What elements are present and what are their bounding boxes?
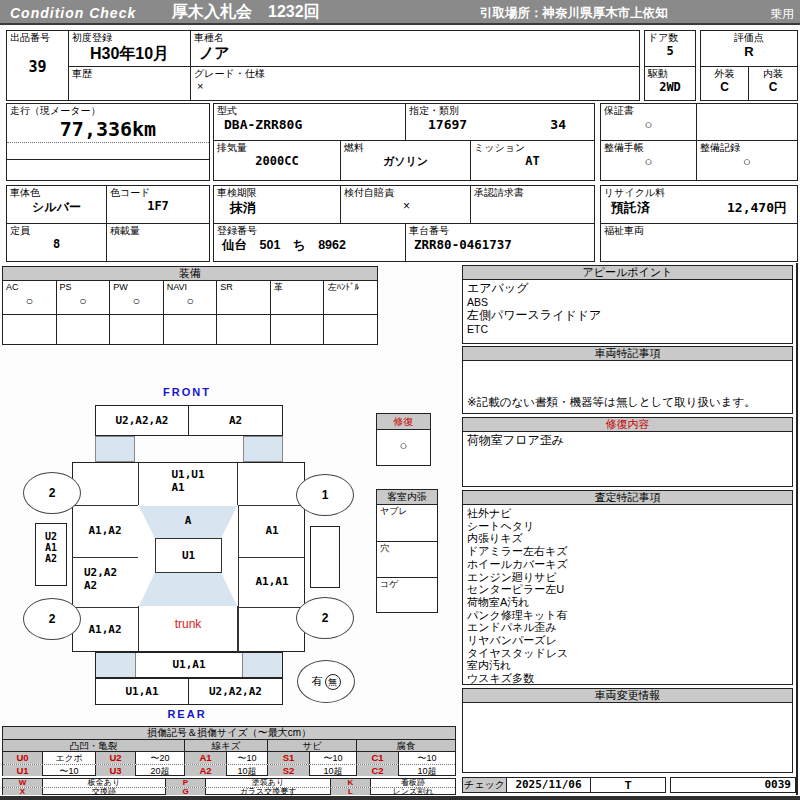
- drive-value: 2WD: [645, 80, 695, 94]
- rear-bumper-right-marks: U2,A2,A2: [189, 679, 282, 704]
- taillight-left: [96, 653, 136, 677]
- legend-mark-code: W: [3, 779, 43, 787]
- cabin-lining-title: 客室内張: [377, 490, 437, 505]
- model-code-label: 型式: [214, 104, 405, 117]
- spare-tire-mark: 有 無: [297, 660, 355, 703]
- score-box: 評価点 R 外装 C 内装 C: [700, 30, 798, 101]
- special-notes-panel: 車両特記事項 ※記載のない書類・機器等は無しとして取り扱います。: [462, 346, 793, 414]
- legend-code: S2: [268, 765, 310, 776]
- roof-mark: U1: [182, 549, 195, 562]
- chassis-number-label: 車台番号: [406, 224, 594, 237]
- legend-code: S1: [268, 752, 310, 764]
- legend-size: 〜20: [136, 752, 185, 764]
- equipment-cell-ac: AC ○: [3, 281, 57, 314]
- sheet-number-box: 0039: [670, 777, 796, 793]
- fuel-value: ガソリン: [341, 154, 470, 169]
- change-info-panel: 車両変更情報: [462, 688, 793, 773]
- check-label-cell: チェック: [463, 778, 507, 792]
- equipment-cell-leather: 革: [271, 281, 325, 314]
- rear-label: REAR: [140, 708, 234, 720]
- legend-mark-label: レンズ割れ: [371, 788, 455, 795]
- maintenance-record-label: 整備記録: [697, 141, 797, 154]
- equipment-cell-pw: PW ○: [110, 281, 164, 314]
- legend-size: 〜10: [227, 752, 268, 764]
- model-code-value: DBA-ZRR80G: [214, 117, 405, 132]
- left-slide-door-marks-line2: A2: [84, 579, 138, 592]
- capacity-label: 定員: [7, 224, 106, 237]
- maintenance-book-label: 整備手帳: [601, 141, 696, 154]
- assessment-line: ドアミラー左右キズ: [467, 545, 788, 558]
- assessment-line: リヤバンパーズレ: [467, 634, 788, 647]
- repair-mark-title: 修復: [377, 414, 430, 430]
- legend-code: A2: [185, 765, 227, 776]
- equipment-label-pw: PW: [110, 281, 163, 294]
- first-registration-value: H30年10月: [69, 44, 190, 65]
- drive-label: 駆動: [645, 67, 695, 80]
- left-mirror-box: U2 A1 A2: [35, 523, 67, 586]
- cabin-row-tear: ヤブレ: [377, 505, 437, 518]
- bottom-bar: [0, 796, 800, 800]
- lot-number-value: 39: [7, 58, 68, 76]
- taillight-right: [242, 653, 282, 677]
- wheel-front-left-tire-count: 2: [49, 486, 56, 500]
- damage-legend-table: 損傷記号＆損傷サイズ（〜最大cm） 凸凹・亀裂 線キズ サビ 腐食 U0 エクボ…: [2, 726, 456, 776]
- chassis-number-value: ZRR80-0461737: [406, 237, 594, 252]
- insurance-label: 検付自賠責: [341, 186, 470, 199]
- brand-logo: Condition Check: [10, 5, 136, 21]
- appeal-line: エアバッグ: [467, 282, 788, 296]
- repair-mark-box: 修復 ○: [376, 413, 431, 466]
- legend-code: U2: [96, 752, 136, 764]
- equipment-mark-ps: ○: [57, 294, 110, 308]
- legend-group-corrosion: 腐食: [357, 740, 455, 751]
- interior-value: C: [749, 80, 797, 94]
- insurance-mark: ×: [341, 199, 470, 213]
- cabin-row-hole: 穴: [377, 542, 437, 555]
- body-color-value: シルバー: [7, 199, 106, 216]
- legend-size: 〜10: [310, 752, 357, 764]
- assessment-line: ウスキズ多数: [467, 672, 788, 685]
- equipment-table: 装備 AC ○ PS ○ PW ○ NAVI ○ SR 革: [2, 266, 378, 345]
- legend-mark-label: ガラス交換要す: [206, 788, 331, 795]
- load-label: 積載量: [107, 224, 209, 237]
- body-color-label: 車体色: [7, 186, 106, 199]
- hood-marks-line2: A1: [119, 481, 237, 494]
- assessment-line: 内張りキズ: [467, 532, 788, 545]
- assessment-line: ホイールカバーキズ: [467, 558, 788, 571]
- wheel-rear-left: 2: [23, 598, 81, 640]
- title-bar: Condition Check 厚木入札会 1232回 引取場所：神奈川県厚木市…: [0, 0, 800, 25]
- legend-size: 〜10: [399, 752, 455, 764]
- vehicle-identity-box: 出品番号 39 初度登録 H30年10月 車歴 車種名 ノア グレード・仕様 ×: [6, 30, 640, 101]
- left-mirror-mark: U2: [36, 531, 66, 542]
- right-edge-line: [796, 263, 798, 795]
- maintenance-record-mark: ○: [697, 154, 797, 169]
- equipment-cell-ps: PS ○: [57, 281, 111, 314]
- history-label: 車歴: [69, 67, 190, 80]
- assessment-line: 室内汚れ: [467, 659, 788, 672]
- hood-marks-line1: U1,U1: [139, 468, 237, 481]
- change-info-title: 車両変更情報: [463, 689, 792, 703]
- pickup-location: 引取場所：神奈川県厚木市上依知: [480, 5, 668, 22]
- equipment-cell-sr: SR: [217, 281, 271, 314]
- doors-value: 5: [645, 44, 695, 58]
- legend-group-rust: サビ: [268, 740, 357, 751]
- left-front-door-panel: A1,A2: [72, 505, 138, 557]
- special-notes-title: 車両特記事項: [463, 347, 792, 361]
- repair-panel: 修復内容 荷物室フロア歪み: [462, 417, 793, 487]
- legend-size: 〜10: [43, 765, 96, 776]
- type-number: 17697: [428, 117, 467, 132]
- rear-bumper-left-marks: U1,A1: [96, 679, 189, 704]
- cabin-lining-box: 客室内張 ヤブレ 穴 コゲ: [376, 489, 438, 613]
- registration-number-label: 登録番号: [214, 224, 405, 237]
- exterior-label: 外装: [701, 67, 748, 80]
- legend-code: A1: [185, 752, 227, 764]
- right-quarter-panel: [238, 607, 305, 652]
- legend-code: U3: [96, 765, 136, 776]
- divider-dotted: [7, 142, 209, 143]
- first-registration-label: 初度登録: [69, 31, 190, 44]
- legend-group-scratch: 線キズ: [185, 740, 268, 751]
- registration-box: 車検期限 抹消 検付自賠責 × 承認請求書 登録番号 仙台 501 ち 8962…: [213, 185, 595, 262]
- maintenance-book-mark: ○: [601, 154, 696, 169]
- left-mirror-mark: A2: [36, 553, 66, 564]
- auction-condition-sheet: Condition Check 厚木入札会 1232回 引取場所：神奈川県厚木市…: [0, 0, 800, 800]
- documents-empty-cell: [697, 104, 797, 140]
- equipment-mark-ac: ○: [3, 294, 56, 308]
- lot-number-cell: 出品番号 39: [7, 31, 69, 100]
- left-slide-door-panel: U2,A2 A2: [72, 557, 138, 607]
- equipment-mark-pw: ○: [110, 294, 163, 308]
- wheel-rear-right-tire-count: 2: [322, 611, 329, 625]
- model-name-value: ノア: [191, 44, 639, 63]
- legend-code: U0: [3, 752, 43, 764]
- warranty-mark: ○: [601, 117, 696, 132]
- special-notes-disclaimer: ※記載のない書類・機器等は無しとして取り扱います。: [467, 395, 756, 410]
- equipment-cell-lhd: 左ﾊﾝﾄﾞﾙ: [324, 281, 377, 314]
- equipment-label-leather: 革: [271, 281, 324, 294]
- legend-mark-code: L: [331, 788, 371, 795]
- damage-legend-title: 損傷記号＆損傷サイズ（〜最大cm）: [3, 727, 455, 740]
- score-value: R: [701, 44, 797, 59]
- displacement-value: 2000CC: [214, 154, 340, 168]
- grade-label: グレード・仕様: [191, 67, 639, 80]
- inspection-value: 抹消: [214, 199, 340, 217]
- wheel-front-right: 1: [296, 474, 354, 516]
- welfare-label: 福祉車両: [601, 224, 797, 237]
- exterior-value: C: [701, 80, 748, 94]
- equipment-label-sr: SR: [217, 281, 270, 294]
- rear-bumper: U1,A1 U2,A2,A2: [95, 678, 283, 705]
- front-bumper-right-marks: A2: [189, 406, 282, 435]
- legend-mark-label: 塗装あり: [206, 779, 331, 787]
- windshield-mark: A: [185, 514, 192, 527]
- legend-size: 10超: [227, 765, 268, 776]
- legend-mark-code: K: [331, 779, 371, 787]
- trunk-area: trunk: [138, 606, 238, 652]
- recycle-fee: 12,470円: [727, 199, 787, 217]
- left-slide-door-marks-line1: U2,A2: [84, 566, 138, 579]
- color-code-label: 色コード: [107, 186, 209, 199]
- capacity-value: 8: [7, 237, 106, 251]
- front-bumper-left-marks: U2,A2,A2: [96, 406, 189, 435]
- assessment-line: 社外ナビ: [467, 507, 788, 520]
- left-quarter-panel: A1,A2: [72, 607, 138, 652]
- check-date: 2025/11/06: [507, 778, 591, 792]
- appeal-panel: アピールポイント エアバッグ ABS 左側パワースライドドア ETC: [462, 265, 793, 344]
- equipment-empty-row: [3, 315, 377, 345]
- spare-yes-label: 有: [312, 674, 323, 689]
- approval-label: 承認請求書: [471, 186, 594, 199]
- warranty-label: 保証書: [601, 104, 696, 117]
- doors-label: ドア数: [645, 31, 695, 44]
- cabin-row-burn: コゲ: [377, 578, 437, 591]
- assessment-line: 荷物室A汚れ: [467, 596, 788, 609]
- right-front-panel: A1: [238, 505, 305, 557]
- grade-value: ×: [191, 80, 639, 92]
- equipment-label-ps: PS: [57, 281, 110, 294]
- doors-drive-box: ドア数 5 駆動 2WD: [644, 30, 696, 101]
- recycle-box: リサイクル料 預託済 12,470円 福祉車両: [600, 185, 798, 262]
- divider-solid: [7, 159, 209, 160]
- vehicle-category: 乗用: [770, 6, 794, 23]
- mission-label: ミッション: [471, 141, 594, 154]
- mission-value: AT: [471, 154, 594, 168]
- legend-mark-label: 看板跡: [371, 779, 455, 787]
- legend-mark-label: 板金あり: [43, 779, 166, 787]
- displacement-label: 排気量: [214, 141, 340, 154]
- auction-title: 厚木入札会 1232回: [172, 2, 320, 23]
- interior-label: 内装: [749, 67, 797, 80]
- repair-mark-value: ○: [377, 430, 430, 462]
- appeal-line: ABS: [467, 296, 788, 310]
- color-code-value: 1F7: [107, 199, 209, 213]
- recycle-status: 預託済: [611, 199, 650, 217]
- mileage-label: 走行（現メーター）: [7, 104, 209, 117]
- mileage-box: 走行（現メーター） 77,336km: [6, 103, 210, 181]
- class-number: 34: [550, 117, 566, 132]
- equipment-mark-navi: ○: [164, 294, 217, 308]
- equipment-label-navi: NAVI: [164, 281, 217, 294]
- assessment-line: エンジン廻りサビ: [467, 571, 788, 584]
- appeal-title: アピールポイント: [463, 266, 792, 280]
- repair-title: 修復内容: [463, 418, 792, 432]
- assessment-line: タイヤスタッドレス: [467, 647, 788, 660]
- appeal-line: ETC: [467, 323, 788, 337]
- score-label: 評価点: [701, 31, 797, 44]
- equipment-title: 装備: [3, 267, 377, 281]
- legend-code: C2: [357, 765, 399, 776]
- legend-mark-code: X: [3, 788, 43, 795]
- model-name-cell: 車種名 ノア グレード・仕様 ×: [191, 31, 639, 100]
- legend-size: 10超: [399, 765, 455, 776]
- legend-mark-code: G: [166, 788, 206, 795]
- spare-no-label-circled: 無: [325, 674, 341, 690]
- legend-code: U1: [3, 765, 43, 776]
- documents-box: 保証書 ○ 整備手帳 ○ 整備記録 ○: [600, 103, 798, 181]
- rear-window: [139, 573, 237, 606]
- equipment-label-ac: AC: [3, 281, 56, 294]
- type-class-label: 指定・類別: [406, 104, 594, 117]
- front-bumper: U2,A2,A2 A2: [95, 405, 283, 436]
- wheel-front-left: 2: [23, 472, 81, 514]
- trunk-label: trunk: [175, 617, 202, 631]
- headlight-left: [95, 436, 135, 462]
- legend-code: C1: [357, 752, 399, 764]
- legend-group-dents: 凸凹・亀裂: [3, 740, 185, 751]
- mileage-value: 77,336km: [7, 117, 209, 141]
- fuel-label: 燃料: [341, 141, 470, 154]
- windshield: A: [139, 506, 237, 538]
- legend-size: 10超: [310, 765, 357, 776]
- hood-panel: U1,U1 A1: [138, 462, 238, 505]
- equipment-label-lhd: 左ﾊﾝﾄﾞﾙ: [324, 281, 377, 294]
- assessment-line: シートヘタリ: [467, 520, 788, 533]
- wheel-rear-right: 2: [296, 597, 354, 639]
- color-capacity-box: 車体色 シルバー 色コード 1F7 定員 8 積載量: [6, 185, 210, 262]
- lot-number-label: 出品番号: [7, 31, 68, 44]
- inspection-label: 車検期限: [214, 186, 340, 199]
- check-inspector: T: [591, 778, 665, 792]
- front-label: FRONT: [140, 386, 234, 398]
- assessment-line: パンク修理キット有: [467, 609, 788, 622]
- legend-size: 20超: [136, 765, 185, 776]
- tailgate-marks: U1,A1: [136, 653, 242, 677]
- first-registration-cell: 初度登録 H30年10月 車歴: [69, 31, 191, 100]
- wheel-front-right-tire-count: 1: [322, 488, 329, 502]
- check-row: チェック 2025/11/06 T: [462, 777, 666, 793]
- assessment-line: センターピラー左U: [467, 583, 788, 596]
- model-name-label: 車種名: [191, 31, 639, 44]
- registration-number-value: 仙台 501 ち 8962: [214, 237, 405, 254]
- recycle-label: リサイクル料: [601, 186, 797, 199]
- headlight-right: [243, 436, 283, 462]
- assessment-panel: 査定特記事項 社外ナビ シートヘタリ 内張りキズ ドアミラー左右キズ ホイールカ…: [462, 490, 793, 685]
- legend-mark-label: 交換跡: [43, 788, 166, 795]
- left-mirror-mark: A1: [36, 542, 66, 553]
- assessment-line: エンドパネル歪み: [467, 621, 788, 634]
- legend-size: エクボ: [43, 752, 96, 764]
- wheel-rear-left-tire-count: 2: [49, 612, 56, 626]
- tailgate-strip: U1,A1: [95, 652, 283, 678]
- equipment-cell-navi: NAVI ○: [164, 281, 218, 314]
- legend-mark-code: P: [166, 779, 206, 787]
- right-side-panel: A1,A1: [238, 557, 305, 607]
- repair-marks-table: W 板金あり P 塗装あり K 看板跡 X 交換跡 G ガラス交換要す L レン…: [2, 778, 456, 795]
- appeal-line: 左側パワースライドドア: [467, 309, 788, 323]
- engine-box: 型式 DBA-ZRR80G 指定・類別 17697 34 排気量 2000CC …: [213, 103, 595, 181]
- repair-line: 荷物室フロア歪み: [467, 434, 788, 448]
- right-mirror-box: [310, 526, 340, 588]
- roof-panel: U1: [155, 538, 222, 573]
- assessment-title: 査定特記事項: [463, 491, 792, 505]
